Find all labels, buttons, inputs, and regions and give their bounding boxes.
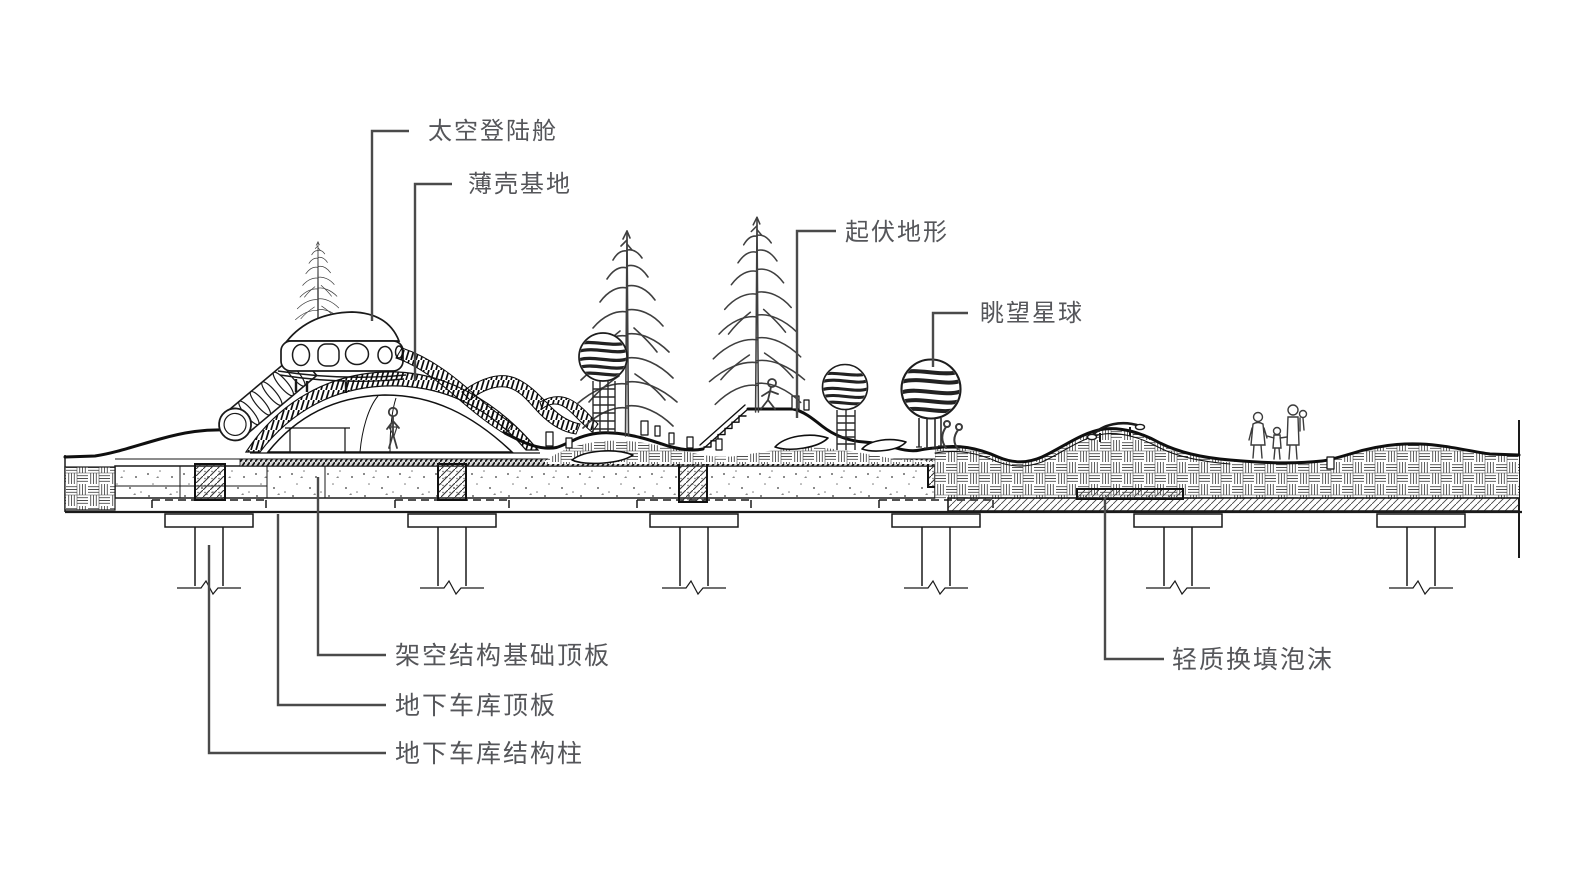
pine-tree-3 — [710, 217, 805, 412]
garage-column-6 — [1377, 514, 1465, 594]
callout-elevated-slab: 架空结构基础顶板 — [395, 641, 611, 670]
garage-column-5 — [1134, 514, 1222, 594]
terrain-line-left — [65, 430, 246, 457]
leader-space-capsule — [372, 131, 409, 321]
callout-shell-base: 薄壳基地 — [468, 170, 572, 198]
leader-elevated-slab — [318, 477, 386, 655]
figure-kids-at-sphere — [942, 421, 962, 449]
foundation-dashed-outline — [152, 500, 993, 511]
lookout-sphere-b — [823, 365, 868, 451]
foam-base-slab-strip — [948, 498, 1519, 511]
callout-foam: 轻质换填泡沫 — [1172, 645, 1334, 674]
figure-family — [1249, 405, 1307, 459]
leader-star-lookout — [933, 313, 968, 367]
garage-column-2 — [408, 514, 496, 594]
garage-column-4 — [892, 514, 980, 594]
elevated-foundation-slab — [115, 459, 944, 502]
callout-space-capsule: 太空登陆舱 — [428, 117, 558, 145]
dome-cap — [287, 312, 399, 341]
mound-stairs — [700, 405, 748, 449]
terrain-notch — [1327, 457, 1334, 469]
leader-shell-base — [415, 184, 452, 381]
leader-garage-slab — [278, 514, 386, 705]
architectural-section-canvas: 太空登陆舱 薄壳基地 起伏地形 眺望星球 架空结构基础顶板 地下车库顶板 地下车… — [0, 0, 1587, 893]
callout-garage-column: 地下车库结构柱 — [395, 739, 584, 768]
garage-column-3 — [650, 514, 738, 594]
leader-garage-column — [209, 545, 386, 753]
pine-tree-2 — [577, 231, 677, 436]
callout-rolling-terrain: 起伏地形 — [845, 218, 949, 246]
left-foam-block — [65, 467, 115, 510]
section-drawing: 太空登陆舱 薄壳基地 起伏地形 眺望星球 架空结构基础顶板 地下车库顶板 地下车… — [0, 0, 1587, 893]
lookout-sphere-c — [902, 360, 961, 449]
garage-columns — [165, 514, 1465, 594]
callout-garage-slab: 地下车库顶板 — [395, 691, 557, 720]
callout-star-lookout: 眺望星球 — [980, 299, 1084, 327]
foam-raised-box — [1077, 489, 1183, 499]
